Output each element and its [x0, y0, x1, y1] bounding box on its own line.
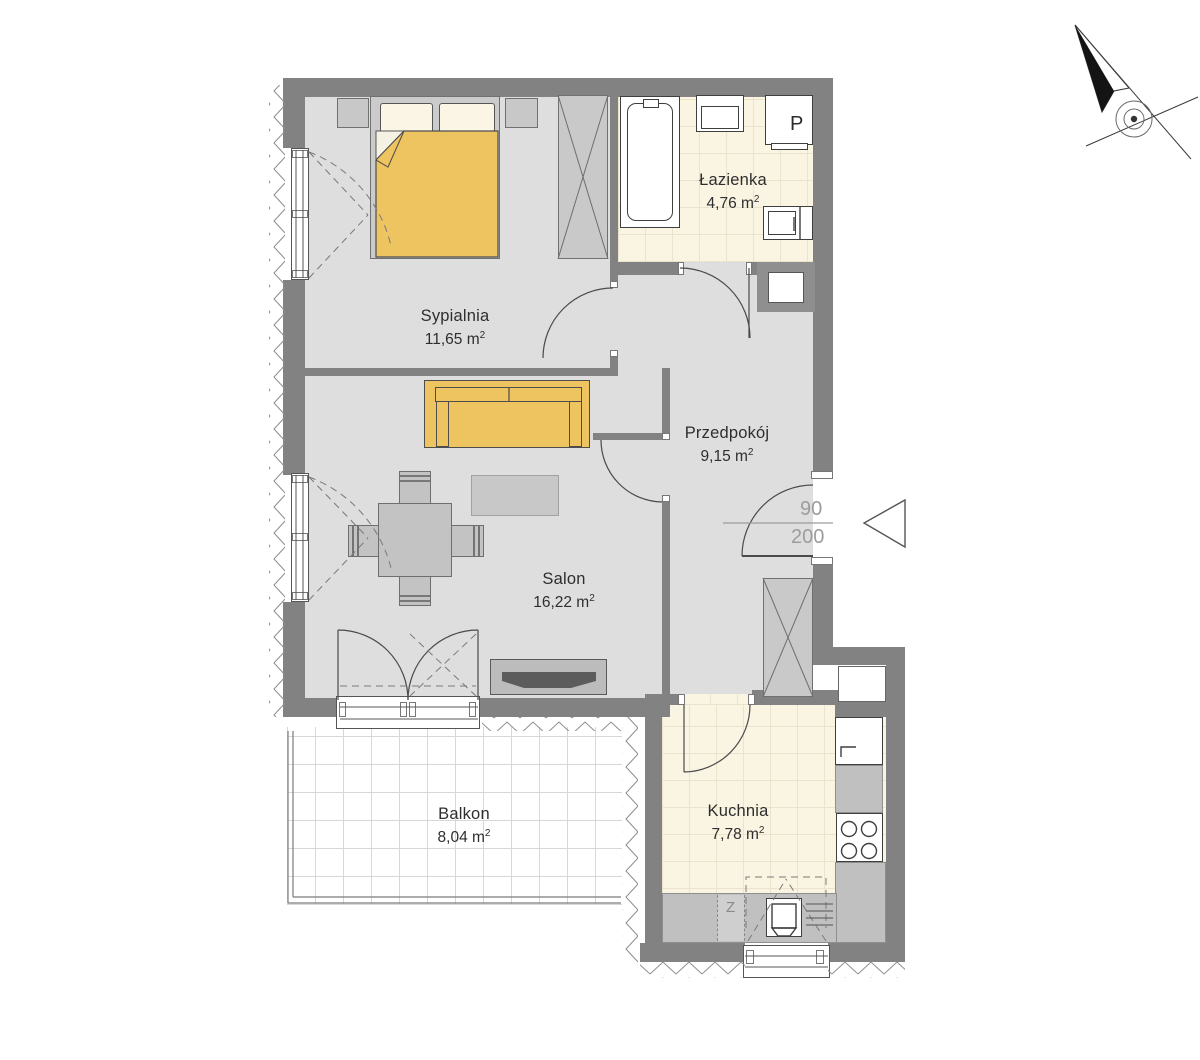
- floor-plan: Sypialnia 11,65 m2 Łazienka 4,76 m2 Prze…: [0, 0, 1200, 1060]
- window-mullion: [292, 475, 308, 483]
- wall-left-c: [283, 602, 305, 717]
- wall-kitchen-left: [645, 694, 662, 943]
- bedroom-door-opening: [610, 288, 618, 353]
- balcony-door-window: [336, 696, 480, 729]
- wall-bedroom-salon: [305, 368, 618, 376]
- tv-cabinet: [490, 659, 607, 695]
- wall-salon-right-bottom: [662, 502, 670, 717]
- north-arrow-compass-icon: [1075, 25, 1198, 159]
- wall-salon-stub: [593, 433, 667, 440]
- washing-machine-lip: [771, 143, 808, 150]
- room-label-kuchnia: Kuchnia 7,78 m2: [707, 802, 768, 844]
- bedroom-wardrobe: [558, 95, 608, 259]
- window-mullion: [409, 702, 416, 717]
- jamb-cap: [811, 471, 833, 479]
- window-mullion: [292, 592, 308, 600]
- jamb-cap: [610, 350, 618, 357]
- wall-left-a: [283, 96, 305, 148]
- window-mullion: [469, 702, 476, 717]
- wall-salon-bottom-right: [478, 698, 670, 717]
- window-mullion: [816, 950, 824, 964]
- window-mullion: [292, 210, 308, 218]
- wall-salon-bottom-left: [305, 698, 338, 717]
- entry-door-width: 90: [800, 498, 822, 521]
- wall-right-mid: [813, 557, 833, 665]
- toilet-bowl: [768, 211, 796, 235]
- jamb-cap: [746, 262, 752, 275]
- hallway-wardrobe: [763, 578, 813, 697]
- sofa-armrest-left: [436, 401, 449, 447]
- kitchen-sink: [766, 898, 802, 937]
- sofa-backrest: [435, 387, 582, 402]
- jamb-cap: [678, 694, 685, 705]
- wall-right-top: [813, 78, 833, 478]
- bathroom-sink-basin: [701, 106, 739, 129]
- washing-machine-label: P: [790, 113, 803, 136]
- kitchen-counter-right-a: [835, 765, 883, 813]
- kitchen-counter-right-b: [835, 862, 886, 943]
- room-label-balkon: Balkon 8,04 m2: [438, 805, 491, 847]
- wall-bath-bottom-left: [618, 262, 680, 275]
- jamb-cap: [662, 495, 670, 502]
- room-label-sypialnia: Sypialnia 11,65 m2: [421, 307, 490, 349]
- window-mullion: [746, 950, 754, 964]
- wall-kitchen-right-outer: [886, 647, 905, 962]
- fridge: [835, 717, 883, 765]
- nightstand-right: [505, 98, 538, 128]
- window-mullion: [400, 702, 407, 717]
- coffee-table: [471, 475, 559, 516]
- window-mullion: [292, 150, 308, 158]
- wall-kitchen-band: [835, 701, 886, 717]
- kitchen-counter-bottom: [662, 893, 837, 943]
- jamb-cap: [610, 281, 618, 288]
- kitchen-door-opening: [683, 694, 752, 705]
- wall-left-b: [283, 280, 305, 475]
- window-mullion: [292, 533, 308, 541]
- room-label-lazienka: Łazienka 4,76 m2: [699, 171, 767, 213]
- jamb-cap: [748, 694, 755, 705]
- wall-bottom-right: [828, 943, 905, 962]
- entry-door-height: 200: [791, 526, 824, 549]
- room-label-salon: Salon 16,22 m2: [533, 570, 595, 612]
- pillow-right: [439, 103, 495, 133]
- stove: [836, 813, 883, 862]
- washing-machine: [765, 95, 813, 145]
- kitchen-z-label: Z: [726, 899, 735, 916]
- salon-door-opening: [662, 440, 670, 502]
- wall-bedroom-right: [610, 96, 618, 288]
- jamb-cap: [811, 557, 833, 565]
- jamb-cap: [662, 433, 670, 440]
- kitchen-shaft: [838, 666, 886, 702]
- window-mullion: [339, 702, 346, 717]
- window-mullion: [292, 270, 308, 278]
- wall-bottom-left: [640, 943, 745, 962]
- jamb-cap: [678, 262, 684, 275]
- pillow-left: [380, 103, 433, 135]
- entry-arrow-icon: [864, 500, 905, 547]
- nightstand-left: [337, 98, 369, 128]
- room-label-przedpokoj: Przedpokój 9,15 m2: [685, 424, 770, 466]
- bathtub-faucet: [643, 99, 659, 108]
- bathtub-basin: [627, 103, 673, 221]
- dining-table: [378, 503, 452, 577]
- wall-salon-right-top: [662, 368, 670, 440]
- sofa-armrest-right: [569, 401, 582, 447]
- bathroom-niche: [768, 272, 804, 303]
